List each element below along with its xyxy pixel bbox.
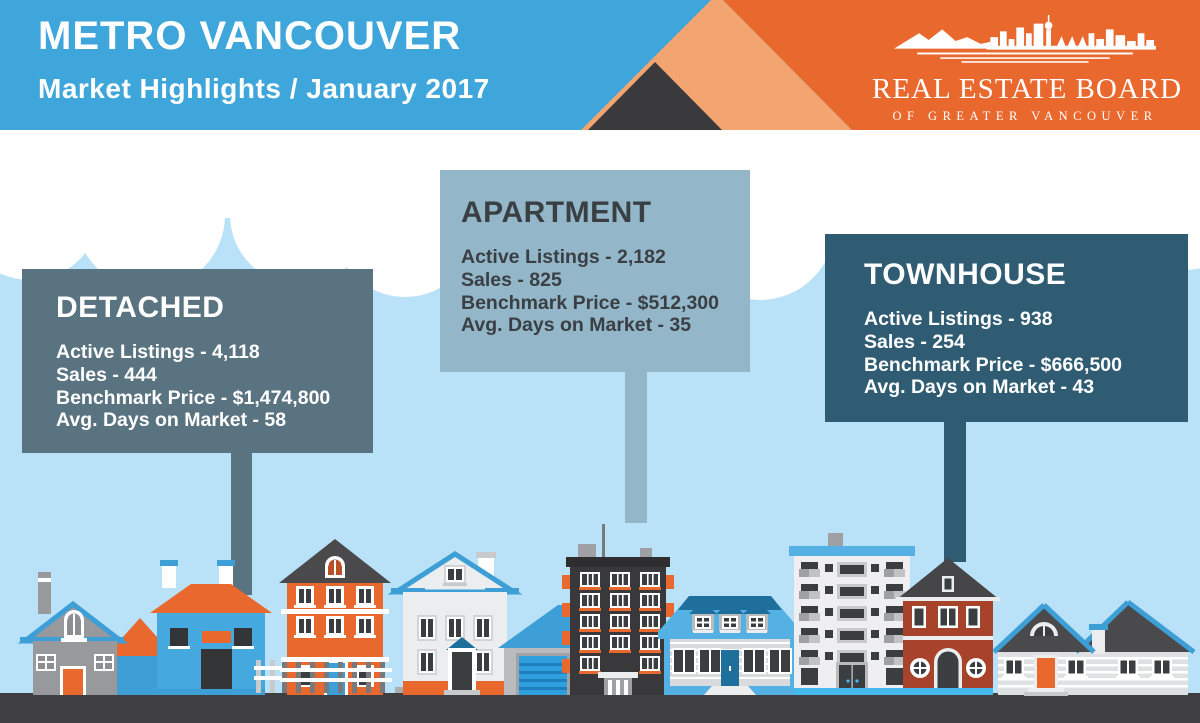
townhouse-benchmark-price: Benchmark Price - $666,500 bbox=[864, 354, 1188, 377]
detached-active-listings: Active Listings - 4,118 bbox=[56, 341, 373, 364]
apartment-stats-card: APARTMENT Active Listings - 2,182 Sales … bbox=[440, 170, 750, 372]
townhouse-stats-card: TOWNHOUSE Active Listings - 938 Sales - … bbox=[825, 234, 1188, 422]
townhouse-active-listings: Active Listings - 938 bbox=[864, 308, 1188, 331]
detached-days-on-market: Avg. Days on Market - 58 bbox=[56, 409, 373, 432]
ground-strip bbox=[0, 693, 1200, 723]
house-white-blue-roof bbox=[391, 552, 519, 695]
house-dormers-siding bbox=[658, 596, 802, 695]
apartment-active-listings: Active Listings - 2,182 bbox=[461, 246, 750, 269]
logo-name: REAL ESTATE BOARD bbox=[872, 73, 1178, 106]
logo-tagline: OF GREATER VANCOUVER bbox=[872, 109, 1178, 124]
cityscape-graphic bbox=[0, 480, 1200, 723]
house-orange-three-story bbox=[279, 539, 392, 695]
house-red-tower-roof bbox=[896, 558, 1000, 695]
townhouse-days-on-market: Avg. Days on Market - 43 bbox=[864, 376, 1188, 399]
detached-stats-card: DETACHED Active Listings - 4,118 Sales -… bbox=[22, 269, 373, 453]
page-title: METRO VANCOUVER bbox=[38, 14, 461, 59]
house-gray-double-gable bbox=[994, 602, 1194, 696]
apartment-benchmark-price: Benchmark Price - $512,300 bbox=[461, 292, 750, 315]
townhouse-sales: Sales - 254 bbox=[864, 331, 1188, 354]
townhouse-card-title: TOWNHOUSE bbox=[864, 258, 1188, 292]
detached-card-title: DETACHED bbox=[56, 291, 373, 325]
rebgv-logo: REAL ESTATE BOARD OF GREATER VANCOUVER bbox=[872, 14, 1178, 118]
detached-sales: Sales - 444 bbox=[56, 364, 373, 387]
tower-dark-apartments bbox=[562, 524, 674, 695]
house-gray-blue-roof bbox=[20, 572, 124, 695]
apartment-card-title: APARTMENT bbox=[461, 196, 750, 230]
detached-benchmark-price: Benchmark Price - $1,474,800 bbox=[56, 387, 373, 410]
building-white-apartments bbox=[789, 533, 915, 695]
dormers bbox=[689, 601, 771, 633]
house-lightblue-orange-roof bbox=[150, 560, 272, 695]
vancouver-skyline-icon bbox=[889, 14, 1161, 66]
page-subtitle: Market Highlights / January 2017 bbox=[38, 73, 490, 105]
apartment-sales: Sales - 825 bbox=[461, 269, 750, 292]
apartment-days-on-market: Avg. Days on Market - 35 bbox=[461, 314, 750, 337]
infographic-canvas: DETACHED Active Listings - 4,118 Sales -… bbox=[0, 0, 1200, 723]
header-banner: METRO VANCOUVER Market Highlights / Janu… bbox=[0, 0, 1200, 130]
